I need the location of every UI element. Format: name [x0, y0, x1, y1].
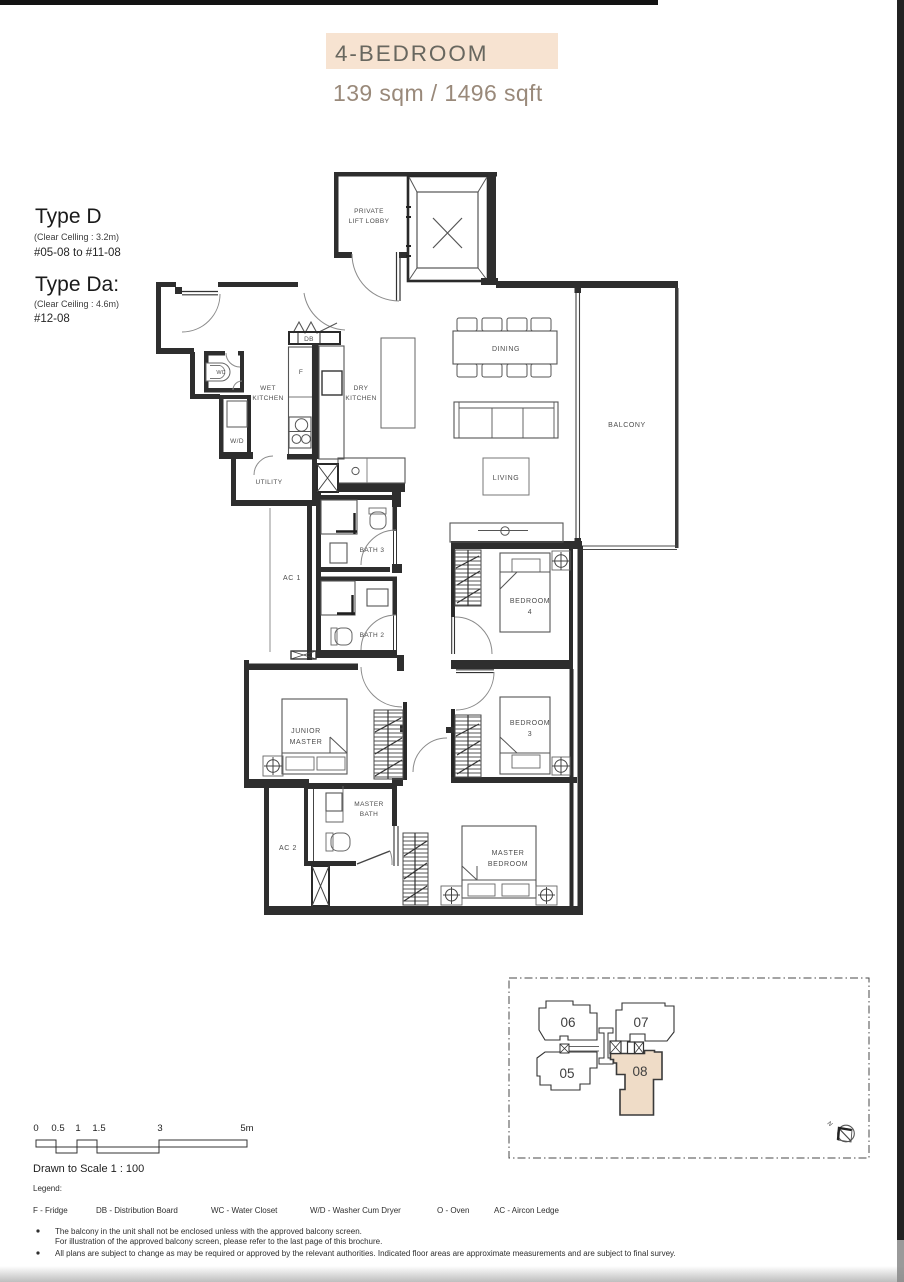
svg-text:BEDROOM: BEDROOM	[488, 861, 528, 868]
svg-text:LIFT LOBBY: LIFT LOBBY	[349, 218, 390, 225]
svg-text:O - Oven: O - Oven	[437, 1206, 469, 1215]
svg-text:F - Fridge: F - Fridge	[33, 1206, 68, 1215]
svg-text:#12-08: #12-08	[34, 313, 70, 325]
svg-text:All plans are subject to chang: All plans are subject to change as may b…	[55, 1249, 676, 1258]
svg-text:JUNIOR: JUNIOR	[291, 728, 321, 735]
svg-text:BEDROOM: BEDROOM	[510, 598, 550, 605]
svg-text:139 sqm / 1496 sqft: 139 sqm / 1496 sqft	[333, 80, 543, 106]
svg-text:3: 3	[157, 1123, 162, 1134]
svg-text:Drawn to Scale 1 : 100: Drawn to Scale 1 : 100	[33, 1163, 144, 1175]
svg-text:1.5: 1.5	[92, 1123, 105, 1134]
svg-text:AC 1: AC 1	[283, 575, 301, 582]
svg-text:06: 06	[560, 1015, 575, 1030]
svg-text:(Clear Celling : 3.2m): (Clear Celling : 3.2m)	[34, 232, 119, 242]
svg-text:KITCHEN: KITCHEN	[252, 395, 283, 402]
svg-text:The balcony in the unit shall: The balcony in the unit shall not be enc…	[55, 1227, 362, 1236]
svg-text:KITCHEN: KITCHEN	[345, 395, 376, 402]
svg-text:LIVING: LIVING	[493, 475, 520, 482]
svg-text:3: 3	[528, 731, 533, 738]
svg-text:DINING: DINING	[492, 346, 520, 353]
svg-text:DRY: DRY	[354, 385, 369, 392]
svg-text:BEDROOM: BEDROOM	[510, 720, 550, 727]
svg-text:5m: 5m	[240, 1123, 253, 1134]
svg-text:4-BEDROOM: 4-BEDROOM	[335, 41, 488, 66]
svg-text:BATH: BATH	[360, 811, 378, 818]
svg-text:PRIVATE: PRIVATE	[354, 208, 384, 215]
svg-text:0.5: 0.5	[51, 1123, 64, 1134]
svg-text:WC: WC	[216, 370, 225, 376]
svg-text:MASTER: MASTER	[354, 801, 384, 808]
svg-text:WC - Water Closet: WC - Water Closet	[211, 1206, 278, 1215]
svg-text:Type D: Type D	[35, 205, 102, 228]
svg-text:MASTER: MASTER	[290, 739, 323, 746]
svg-text:#05-08 to #11-08: #05-08 to #11-08	[34, 247, 121, 259]
svg-text:For illustration of the approv: For illustration of the approved balcony…	[55, 1237, 382, 1246]
svg-text:07: 07	[633, 1015, 648, 1030]
svg-text:Legend:: Legend:	[33, 1184, 62, 1193]
svg-text:W/D - Washer Cum Dryer: W/D - Washer Cum Dryer	[310, 1206, 401, 1215]
svg-text:DB - Distribution Board: DB - Distribution Board	[96, 1206, 178, 1215]
svg-text:05: 05	[559, 1066, 574, 1081]
svg-text:BALCONY: BALCONY	[608, 422, 646, 429]
svg-text:W/D: W/D	[230, 438, 244, 445]
svg-text:F: F	[299, 369, 303, 376]
svg-text:0: 0	[33, 1123, 38, 1134]
svg-text:08: 08	[632, 1064, 647, 1079]
svg-text:AC - Aircon Ledge: AC - Aircon Ledge	[494, 1206, 559, 1215]
svg-text:WET: WET	[260, 385, 276, 392]
svg-text:UTILITY: UTILITY	[256, 479, 283, 486]
svg-text:Type Da:: Type Da:	[35, 273, 119, 296]
svg-text:4: 4	[528, 609, 533, 616]
svg-text:(Clear Ceiling : 4.6m): (Clear Ceiling : 4.6m)	[34, 299, 119, 309]
svg-text:MASTER: MASTER	[492, 850, 525, 857]
svg-text:BATH 3: BATH 3	[360, 547, 385, 554]
svg-text:BATH 2: BATH 2	[360, 632, 385, 639]
svg-text:DB: DB	[304, 336, 314, 343]
svg-text:AC 2: AC 2	[279, 845, 297, 852]
svg-text:1: 1	[75, 1123, 80, 1134]
